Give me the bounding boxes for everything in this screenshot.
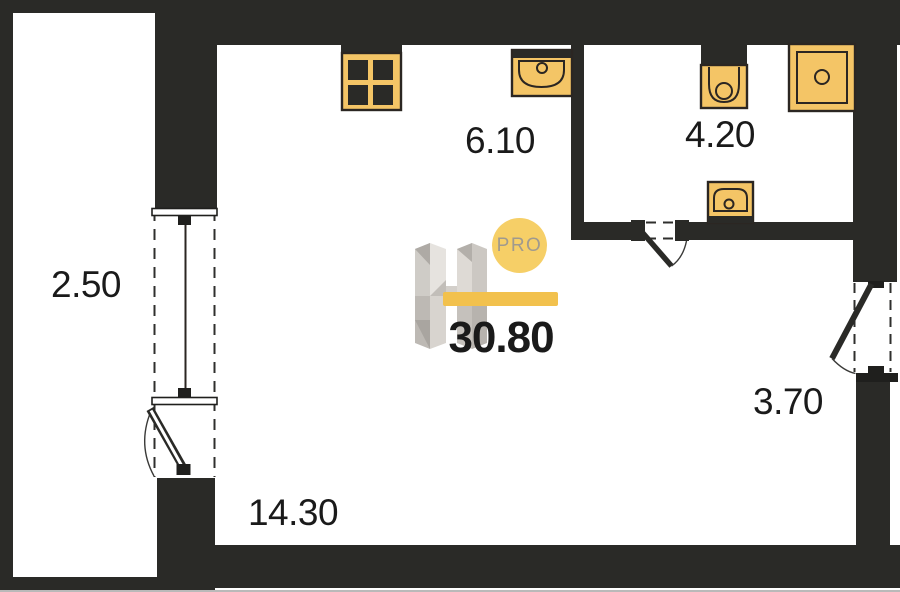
entrance-door [832, 281, 898, 382]
entrance-door-leaf [832, 284, 872, 359]
toilet-tank [701, 41, 747, 67]
shower-tray [789, 44, 855, 111]
kitchen-sink-wall-mount [513, 50, 571, 58]
window-sill-top [152, 209, 217, 216]
balcony-door-hinge [177, 464, 191, 475]
bathroom-door-arc [672, 241, 687, 266]
balcony-area-label: 2.50 [51, 266, 121, 303]
window-sill-mid [152, 398, 217, 405]
kitchen-area-label: 6.10 [465, 122, 535, 159]
logo-underline-bar [443, 292, 558, 306]
logo-facet [472, 243, 487, 296]
stove-burner [348, 60, 368, 80]
pro-badge-label: PRO [497, 236, 543, 255]
bathroom-door [639, 223, 687, 267]
stove-burner [373, 60, 393, 80]
window-anchor-top [178, 215, 191, 225]
stove-icon [341, 44, 402, 110]
washbasin-icon [708, 182, 753, 223]
window-anchor-mid [178, 388, 191, 398]
bathroom-area-label: 4.20 [685, 116, 755, 153]
bathroom-door-leaf [639, 228, 672, 266]
balcony-door [145, 409, 191, 476]
stove-burner [373, 85, 393, 105]
pro-badge: PRO [492, 218, 547, 273]
toilet-icon [701, 41, 747, 108]
kitchen-sink-icon [512, 50, 572, 96]
entrance-door-jamb-bottom [868, 366, 884, 373]
entrance-wall-cap [856, 373, 898, 382]
hallway-area-label: 3.70 [753, 383, 823, 420]
balcony-door-leaf-core [151, 411, 183, 469]
entrance-door-arc [832, 359, 856, 374]
floor-plan: 2.50 6.10 4.20 3.70 14.30 PRO 30.80 [0, 0, 900, 592]
washbasin-base [708, 216, 753, 223]
shower-icon [789, 44, 855, 111]
stove-burner [348, 85, 368, 105]
living-room-area-label: 14.30 [248, 494, 338, 531]
total-area-label: 30.80 [448, 316, 553, 360]
